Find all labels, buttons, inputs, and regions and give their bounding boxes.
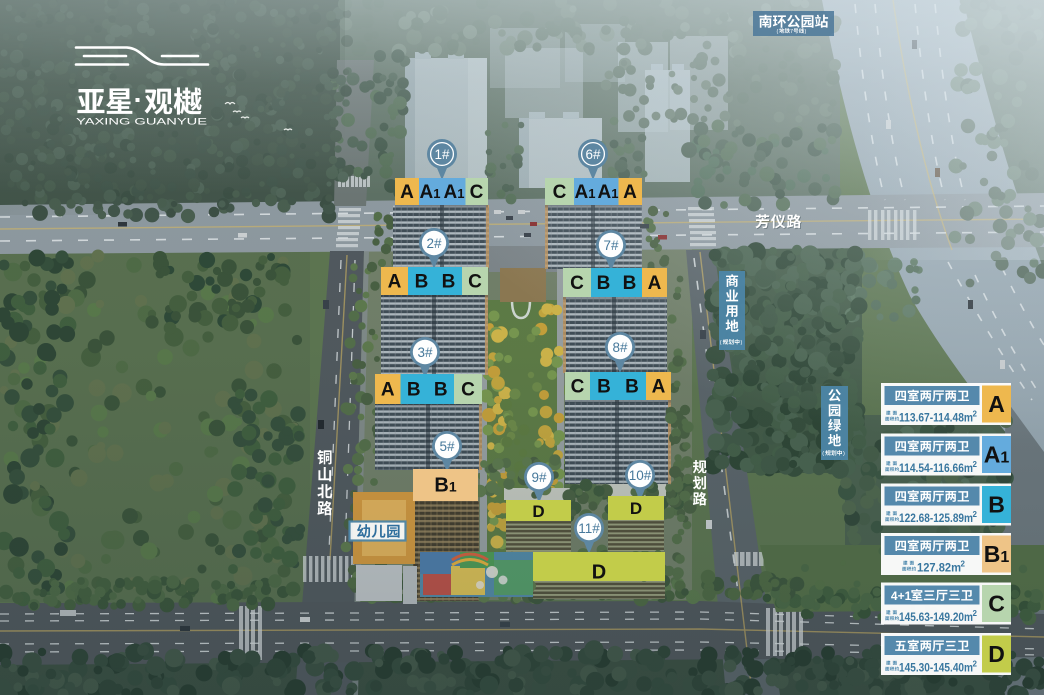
svg-text:D: D bbox=[630, 499, 642, 518]
svg-text:D: D bbox=[532, 502, 544, 521]
svg-text:7: 7 bbox=[790, 29, 793, 35]
svg-text:C: C bbox=[461, 380, 475, 401]
svg-text:B1: B1 bbox=[434, 475, 456, 497]
svg-text:2: 2 bbox=[973, 660, 978, 669]
svg-text:A1: A1 bbox=[575, 182, 596, 203]
svg-text:122.68-125.89m: 122.68-125.89m bbox=[899, 513, 973, 525]
svg-text:113.67-114.48m: 113.67-114.48m bbox=[899, 413, 973, 425]
svg-text:145.63-149.20m: 145.63-149.20m bbox=[899, 612, 973, 624]
svg-text:A: A bbox=[652, 377, 666, 398]
svg-text:C: C bbox=[470, 182, 484, 203]
svg-text:9#: 9# bbox=[531, 470, 547, 485]
svg-text:A: A bbox=[381, 380, 395, 401]
svg-text:): ) bbox=[741, 340, 743, 346]
svg-text:A: A bbox=[400, 182, 414, 203]
svg-text:A1: A1 bbox=[444, 182, 465, 203]
svg-text:B: B bbox=[597, 377, 611, 398]
svg-text:C: C bbox=[571, 377, 585, 398]
svg-text:6#: 6# bbox=[585, 147, 601, 162]
svg-text:2: 2 bbox=[973, 510, 978, 519]
svg-text:(: ( bbox=[720, 340, 722, 346]
svg-text:B: B bbox=[988, 492, 1005, 518]
svg-text:7#: 7# bbox=[603, 238, 619, 253]
svg-text:C: C bbox=[553, 182, 567, 203]
svg-text:B: B bbox=[442, 272, 456, 293]
svg-text:8#: 8# bbox=[612, 340, 628, 355]
svg-text:C: C bbox=[468, 272, 482, 293]
svg-text:2#: 2# bbox=[426, 236, 442, 251]
svg-text:5#: 5# bbox=[439, 439, 455, 454]
svg-text:4+1: 4+1 bbox=[891, 589, 912, 603]
svg-text:): ) bbox=[843, 451, 845, 457]
svg-text:A1: A1 bbox=[420, 182, 441, 203]
svg-text:B: B bbox=[434, 380, 448, 401]
svg-text:): ) bbox=[805, 29, 807, 35]
svg-text:127.82m: 127.82m bbox=[917, 563, 961, 575]
svg-text:D: D bbox=[988, 641, 1005, 667]
svg-text:2: 2 bbox=[973, 410, 978, 419]
svg-text:A: A bbox=[648, 273, 662, 294]
svg-text:(: ( bbox=[822, 451, 824, 457]
svg-text:(: ( bbox=[777, 29, 779, 35]
svg-text:C: C bbox=[988, 591, 1005, 617]
svg-text:B: B bbox=[597, 273, 611, 294]
svg-text:B: B bbox=[415, 272, 429, 293]
svg-text:B: B bbox=[407, 380, 421, 401]
svg-text:YAXING GUANYUE: YAXING GUANYUE bbox=[76, 117, 207, 127]
svg-text:3#: 3# bbox=[417, 345, 433, 360]
svg-text:B: B bbox=[625, 377, 639, 398]
svg-text:114.54-116.66m: 114.54-116.66m bbox=[899, 463, 973, 475]
svg-text:145.30-145.40m: 145.30-145.40m bbox=[899, 663, 973, 675]
svg-text:1#: 1# bbox=[434, 147, 450, 162]
svg-text:2: 2 bbox=[973, 460, 978, 469]
svg-text:10#: 10# bbox=[629, 468, 652, 483]
svg-text:A: A bbox=[388, 272, 402, 293]
svg-text:A: A bbox=[988, 391, 1005, 417]
svg-text:2: 2 bbox=[961, 560, 966, 569]
svg-text:A: A bbox=[623, 182, 637, 203]
svg-text:D: D bbox=[592, 562, 606, 584]
svg-text:2: 2 bbox=[973, 609, 978, 618]
svg-text:B: B bbox=[623, 273, 637, 294]
svg-text:A1: A1 bbox=[598, 182, 619, 203]
svg-text:11#: 11# bbox=[578, 521, 600, 536]
svg-text:C: C bbox=[570, 273, 584, 294]
